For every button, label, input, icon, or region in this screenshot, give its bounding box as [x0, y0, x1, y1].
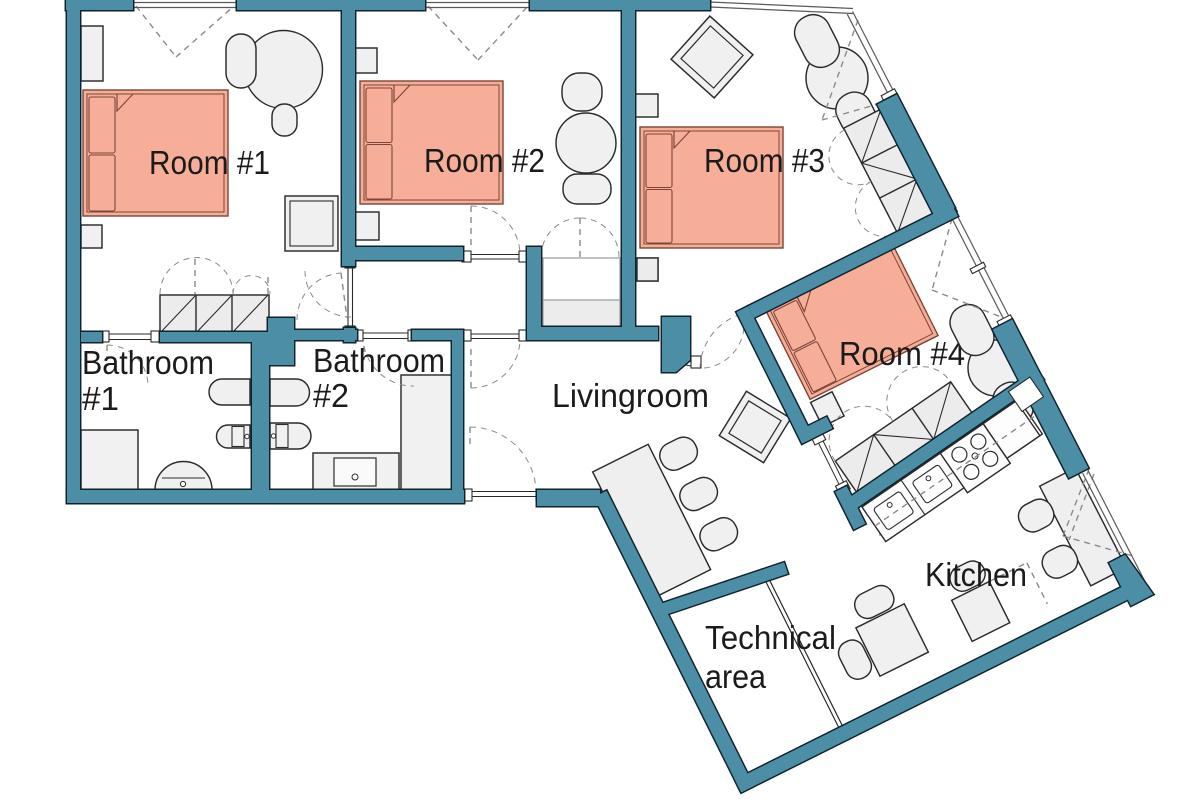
svg-text:Room #3: Room #3: [704, 143, 825, 180]
svg-text:Kitchen: Kitchen: [925, 557, 1027, 594]
svg-text:area: area: [705, 659, 766, 696]
svg-text:Room #4: Room #4: [839, 336, 965, 373]
svg-text:Technical: Technical: [705, 620, 836, 657]
svg-text:Room #1: Room #1: [149, 145, 270, 182]
svg-text:#2: #2: [313, 378, 349, 415]
svg-text:#1: #1: [82, 381, 119, 418]
svg-text:Bathroom: Bathroom: [82, 345, 214, 382]
svg-text:Bathroom: Bathroom: [313, 343, 445, 380]
svg-text:Room #2: Room #2: [424, 143, 545, 180]
svg-text:Livingroom: Livingroom: [552, 378, 709, 415]
